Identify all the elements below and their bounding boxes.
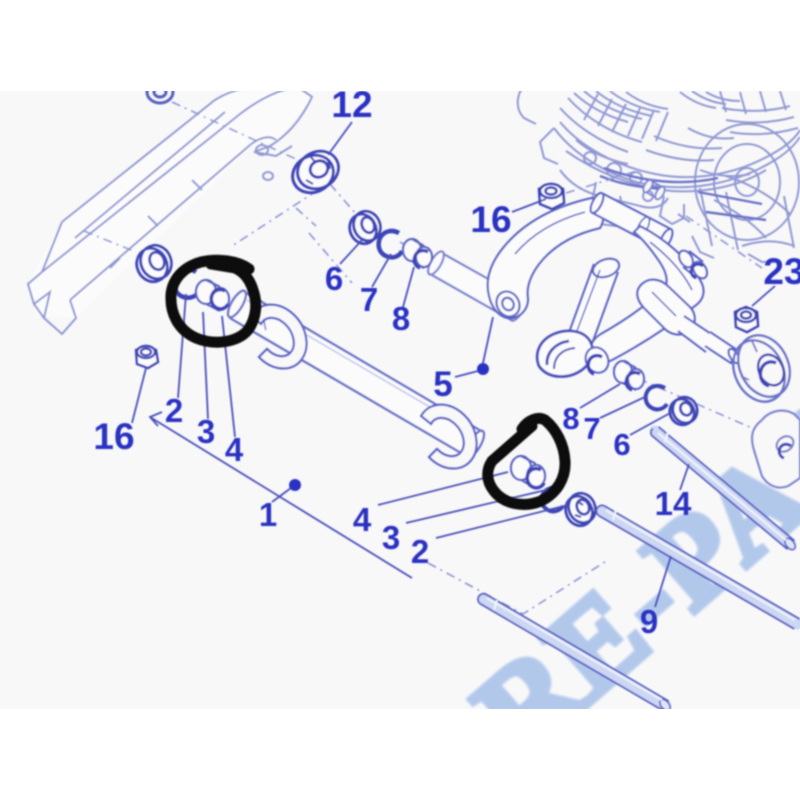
- svg-text:8: 8: [392, 300, 410, 337]
- svg-text:16: 16: [93, 416, 134, 457]
- svg-text:2: 2: [165, 392, 183, 429]
- svg-text:23: 23: [763, 251, 800, 292]
- svg-text:9: 9: [640, 603, 658, 640]
- svg-text:1: 1: [259, 496, 277, 533]
- svg-text:6: 6: [613, 427, 630, 462]
- svg-text:4: 4: [225, 431, 244, 468]
- svg-text:5: 5: [433, 365, 452, 404]
- svg-text:14: 14: [655, 485, 692, 522]
- svg-text:6: 6: [325, 260, 343, 297]
- svg-text:4: 4: [353, 501, 372, 538]
- svg-text:3: 3: [382, 519, 400, 556]
- svg-text:16: 16: [470, 199, 511, 240]
- svg-text:3: 3: [197, 413, 215, 450]
- svg-text:7: 7: [583, 411, 600, 446]
- svg-text:8: 8: [562, 401, 579, 436]
- svg-text:7: 7: [360, 281, 378, 318]
- svg-text:2: 2: [411, 533, 429, 570]
